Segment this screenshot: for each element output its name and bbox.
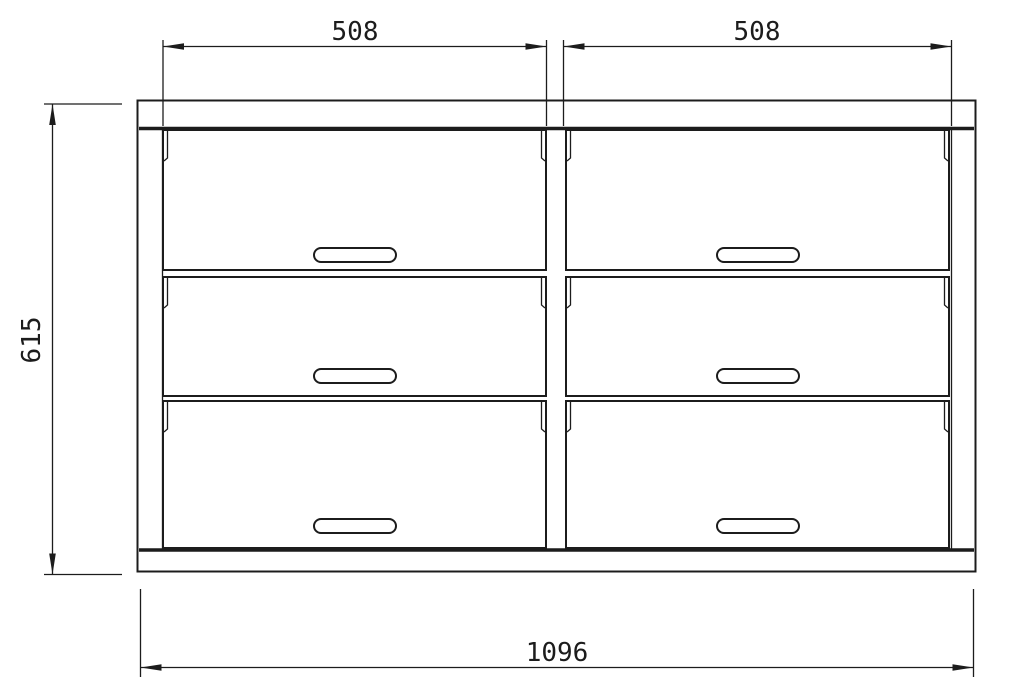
technical-drawing-canvas: 508 508 615 1096 [0, 0, 1024, 685]
dimension-label-top-left: 508 [332, 17, 379, 47]
drawer-handle [314, 519, 396, 533]
drawer-front-left-top [163, 130, 546, 270]
corner-notch [164, 278, 168, 308]
drawer-front-left-middle [163, 277, 546, 396]
drawer-handle [314, 248, 396, 262]
corner-notch [945, 131, 949, 161]
arrowhead-right-icon [953, 664, 974, 671]
corner-notch [542, 131, 546, 161]
dimension-label-left-height: 615 [17, 317, 47, 364]
drawer-handle [717, 369, 799, 383]
drawer-column-left [163, 130, 546, 548]
dimension-left-height: 615 [17, 104, 122, 575]
dimension-label-top-right: 508 [734, 17, 781, 47]
drawer-front-right-bottom [566, 401, 949, 548]
corner-notch [945, 278, 949, 308]
drawer-front-right-top [566, 130, 949, 270]
arrowhead-right-icon [526, 43, 547, 50]
drawer-handle [717, 248, 799, 262]
dimension-top-right-width: 508 [564, 17, 952, 126]
arrowhead-up-icon [49, 104, 56, 125]
corner-notch [542, 278, 546, 308]
drawer-front-right-middle [566, 277, 949, 396]
corner-notch [164, 402, 168, 432]
dresser-dimension-drawing: 508 508 615 1096 [0, 0, 1024, 685]
drawer-column-right [566, 130, 949, 548]
cabinet-outline [138, 101, 976, 572]
arrowhead-left-icon [564, 43, 585, 50]
dimension-top-left-width: 508 [163, 17, 547, 126]
cabinet-carcass [138, 101, 976, 572]
dimension-label-bottom-total: 1096 [526, 638, 589, 668]
drawer-handle [314, 369, 396, 383]
corner-notch [945, 402, 949, 432]
arrowhead-left-icon [163, 43, 184, 50]
corner-notch [567, 402, 571, 432]
dimension-bottom-total-width: 1096 [141, 589, 974, 677]
arrowhead-down-icon [49, 554, 56, 575]
corner-notch [567, 131, 571, 161]
drawer-front-left-bottom [163, 401, 546, 548]
corner-notch [542, 402, 546, 432]
drawer-handle [717, 519, 799, 533]
corner-notch [164, 131, 168, 161]
corner-notch [567, 278, 571, 308]
arrowhead-right-icon [931, 43, 952, 50]
arrowhead-left-icon [141, 664, 162, 671]
